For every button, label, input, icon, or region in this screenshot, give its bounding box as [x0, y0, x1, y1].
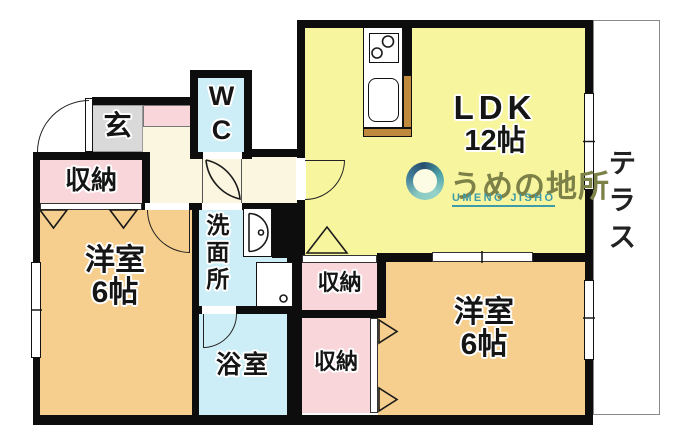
wc-door-leaf — [206, 160, 240, 199]
wc-door-cell-lines — [203, 159, 242, 203]
vanity-faucet-dot — [259, 230, 264, 235]
bedroomL-name: 洋室 — [40, 245, 190, 277]
wc-label: W C — [198, 80, 245, 148]
washer-drain-dot — [280, 295, 287, 302]
watermark-romaji: UMENO JISHO — [452, 192, 555, 207]
bedroomL-label: 洋室 6帖 — [40, 245, 190, 310]
closetL-open-triangle-2 — [110, 210, 137, 228]
closetL-open-triangle-1 — [40, 210, 67, 228]
closetMB-label: 収納 — [302, 350, 370, 374]
closetMT-open-triangle — [307, 227, 347, 253]
stove-burner-2 — [372, 48, 382, 58]
ldk-label: LDK 12帖 — [410, 90, 580, 157]
bathroom-label: 浴室 — [199, 352, 287, 379]
closetMT-label: 収納 — [302, 271, 377, 295]
bedroomR-size: 6帖 — [385, 329, 583, 361]
bedroomR-name: 洋室 — [385, 297, 583, 329]
wc-letter-w: W — [198, 80, 245, 114]
closetMB-open-triangle-2 — [379, 388, 397, 411]
bedroomR-label: 洋室 6帖 — [385, 297, 583, 362]
wc-letter-c: C — [198, 114, 245, 148]
floorplan: LDK 12帖 洋室 6帖 洋室 6帖 W C 洗面所 浴室 玄 収納 収納 収… — [0, 0, 700, 438]
washroom-label: 洗面所 — [203, 213, 228, 294]
closetL-label: 収納 — [40, 166, 142, 194]
ldk-size: 12帖 — [410, 126, 580, 157]
watermark-logo-ring — [406, 162, 444, 200]
watermark-logo-inner — [413, 169, 437, 193]
entrance-label: 玄 — [92, 111, 143, 141]
stove-burner-1 — [383, 36, 394, 47]
ldk-name: LDK — [410, 90, 580, 126]
bedroomL-size: 6帖 — [40, 277, 190, 309]
